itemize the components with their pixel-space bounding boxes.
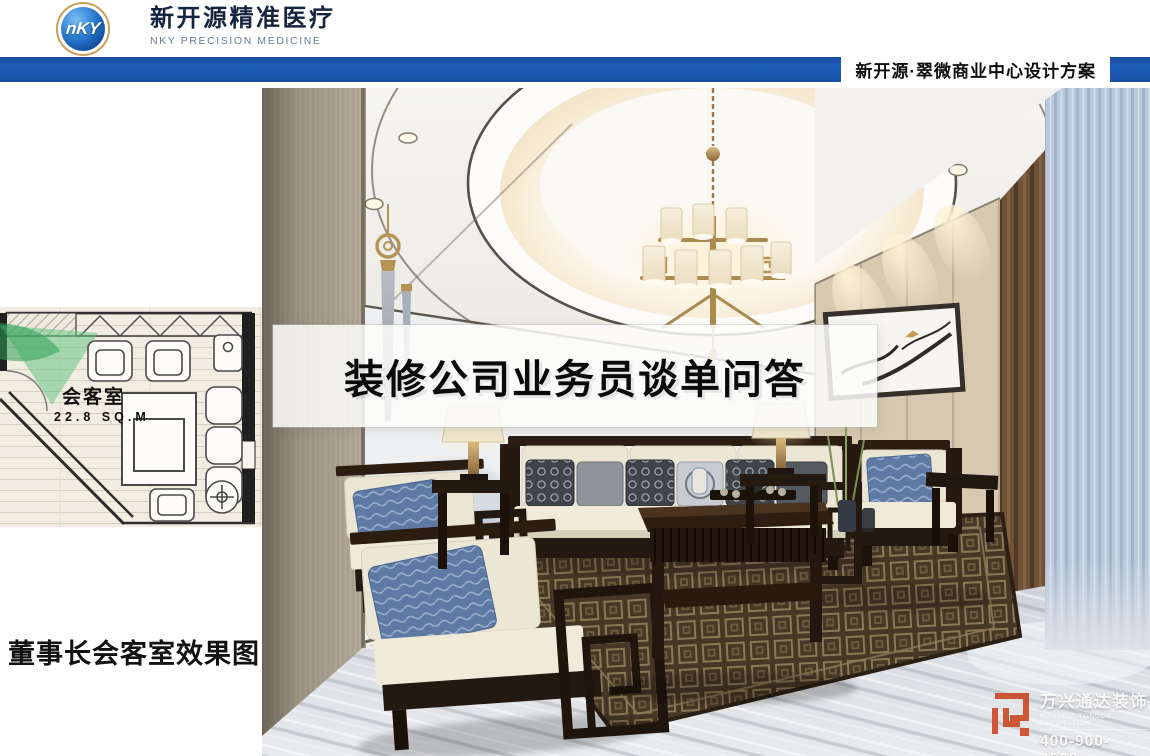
watermark: 万兴通达装饰 WANXING TONGDA DECORATION 400-900… [990, 688, 1148, 756]
overlay-title: 装修公司业务员谈单问答 [344, 347, 806, 405]
bronze-curtain [1000, 150, 1045, 594]
slide-page: nKY 新开源精准医疗 NKY PRECISION MEDICINE 新开源·翠… [0, 0, 1150, 756]
watermark-tagline: WANXING TONGDA DECORATION [1040, 713, 1148, 730]
plan-room-label: 会客室 [62, 385, 125, 408]
title-band: 新开源·翠微商业中心设计方案 [0, 57, 1150, 82]
page-header: nKY 新开源精准医疗 NKY PRECISION MEDICINE [0, 0, 1150, 57]
plan-area-label: 22.8 SQ.M [54, 410, 150, 424]
band-bar-left [0, 57, 841, 82]
watermark-brand: 万兴通达装饰 [1040, 688, 1148, 712]
brand-name-en: NKY PRECISION MEDICINE [150, 35, 336, 47]
nky-logo-text: nKY [65, 19, 101, 39]
watermark-logo-icon [990, 688, 1034, 738]
nky-logo-sphere: nKY [61, 7, 105, 51]
floorplan-figure: 会客室 22.8 SQ.M [0, 293, 262, 527]
brand-block: 新开源精准医疗 NKY PRECISION MEDICINE [150, 6, 336, 47]
brand-name-cn: 新开源精准医疗 [150, 6, 336, 32]
watermark-phone: 400-900-4560 [1040, 733, 1148, 756]
nky-logo-icon: nKY [56, 2, 110, 56]
band-bar-right [1110, 57, 1150, 82]
overlay-title-box: 装修公司业务员谈单问答 [273, 325, 877, 427]
floorplan-svg: 会客室 22.8 SQ.M [0, 293, 262, 527]
doc-title: 新开源·翠微商业中心设计方案 [841, 57, 1110, 82]
figure-caption: 董事长会客室效果图 [8, 632, 260, 671]
render-figure: 装修公司业务员谈单问答 万兴通达装饰 WANXING TONGDA DECORA… [262, 88, 1150, 756]
watermark-texts: 万兴通达装饰 WANXING TONGDA DECORATION 400-900… [1040, 688, 1148, 756]
